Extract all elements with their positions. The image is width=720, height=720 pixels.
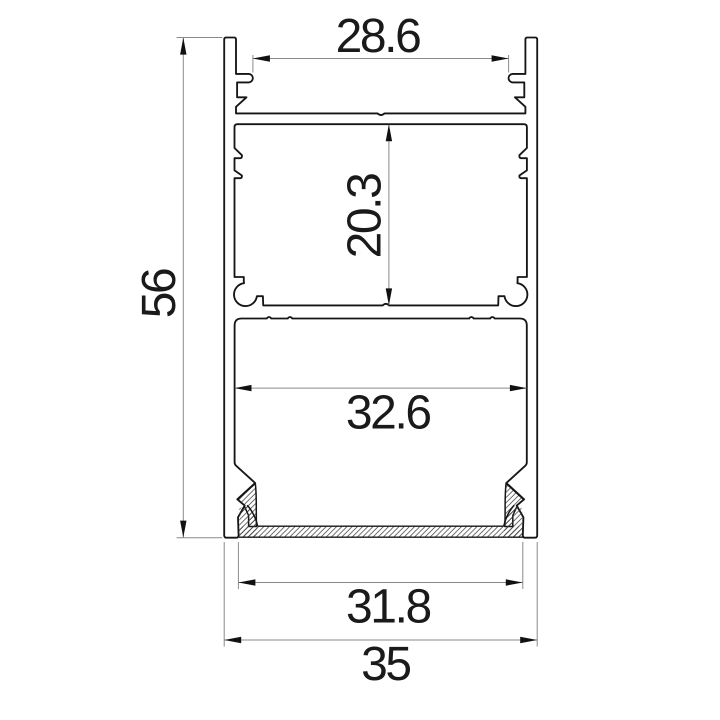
svg-text:35: 35 <box>361 638 410 691</box>
svg-text:31.8: 31.8 <box>346 581 431 634</box>
svg-text:28.6: 28.6 <box>336 10 421 63</box>
svg-text:56: 56 <box>133 269 186 318</box>
svg-text:20.3: 20.3 <box>339 174 392 259</box>
svg-text:32.6: 32.6 <box>346 386 431 439</box>
